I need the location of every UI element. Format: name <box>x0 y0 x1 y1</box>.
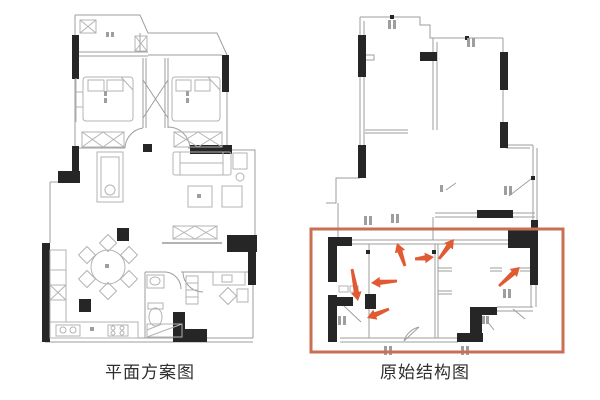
left-plan-walls <box>42 35 257 342</box>
floor-plan-left <box>42 15 257 342</box>
annotation-arrow <box>498 267 520 287</box>
sofa <box>173 152 247 181</box>
floor-plan-right <box>326 15 538 355</box>
bed-right <box>172 77 220 121</box>
hall-cabinet <box>97 152 123 202</box>
annotation-arrow <box>351 269 362 301</box>
armchair <box>222 186 242 207</box>
annotation-arrow <box>371 277 397 288</box>
caption-left-plan: 平面方案图 <box>80 364 220 382</box>
annotation-arrow <box>367 308 390 320</box>
annotation-arrow <box>395 243 406 267</box>
tv-cabinet <box>162 226 222 243</box>
caption-right-plan: 原始结构图 <box>355 364 495 382</box>
annotation-arrow <box>438 239 454 260</box>
toilet-bowl <box>149 308 162 326</box>
study-furniture <box>186 272 248 304</box>
screenshot-root: 平面方案图 原始结构图 <box>0 0 600 400</box>
annotation-arrow <box>415 253 434 264</box>
floor-plans-svg <box>0 0 600 400</box>
